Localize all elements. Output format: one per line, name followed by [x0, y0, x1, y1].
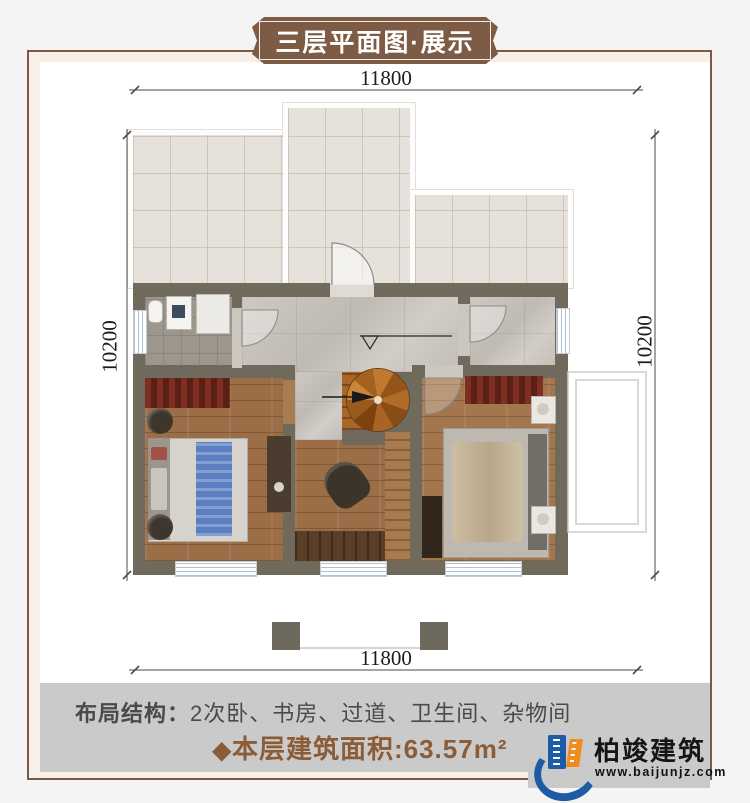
rug — [145, 378, 230, 408]
door-opening-bedroom-right — [425, 365, 463, 378]
logo-building-icon — [548, 735, 566, 769]
nightstand — [531, 506, 556, 534]
dimension-left: 10200 — [98, 302, 123, 392]
column-marker — [272, 622, 300, 650]
side-table — [147, 514, 173, 540]
door-opening-bathroom — [232, 308, 242, 368]
layout-structure-value: 2次卧、书房、过道、卫生间、杂物间 — [190, 701, 571, 726]
title-banner: 三层平面图·展示 — [252, 17, 498, 64]
page-title: 三层平面图·展示 — [252, 17, 498, 64]
window — [556, 308, 570, 354]
window — [133, 310, 147, 354]
desk — [295, 531, 385, 561]
washing-machine — [166, 296, 192, 330]
layout-structure-line: 布局结构：2次卧、书房、过道、卫生间、杂物间 — [75, 696, 571, 728]
floor-area-value: 63.57m² — [404, 734, 508, 764]
company-name: 柏竣建筑 — [594, 731, 706, 768]
pillow — [151, 447, 167, 460]
bookshelf — [385, 432, 410, 561]
room-storage — [470, 297, 555, 372]
wardrobe — [422, 496, 442, 558]
door-opening-terrace — [330, 283, 374, 297]
company-logo: 柏竣建筑 www.baijunjz.com — [532, 729, 710, 791]
dimension-bottom: 11800 — [340, 646, 432, 671]
spiral-staircase-center — [374, 396, 382, 404]
diamond-icon: ◆ — [213, 737, 232, 764]
dimension-right: 10200 — [633, 297, 658, 387]
blanket — [196, 442, 232, 536]
pillow — [151, 468, 167, 510]
company-logo-icon — [534, 731, 592, 787]
side-table — [147, 408, 173, 434]
window — [320, 561, 387, 577]
room-terrace — [288, 108, 410, 285]
blanket — [452, 442, 522, 542]
toilet — [148, 300, 163, 323]
window — [175, 561, 257, 577]
tv-cabinet-detail — [274, 482, 284, 492]
floor-plan-page: 11800 11800 10200 10200 露台 公卫 储藏室 卧室 卧室 … — [0, 0, 750, 803]
dimension-top: 11800 — [340, 66, 432, 91]
door-opening-storage — [458, 304, 470, 356]
door-opening-bedroom-left — [283, 380, 295, 424]
nightstand — [531, 396, 556, 424]
column-marker — [420, 622, 448, 650]
room-terrace — [415, 195, 568, 285]
room-corridor — [295, 372, 342, 440]
window — [445, 561, 522, 577]
layout-structure-label: 布局结构： — [75, 701, 190, 726]
wall-segment — [133, 365, 295, 378]
company-website: www.baijunjz.com — [595, 765, 727, 779]
floor-area-label: 本层建筑面积: — [232, 734, 404, 764]
tv-cabinet — [267, 436, 291, 512]
shower — [196, 294, 230, 334]
room-hallway — [242, 297, 458, 372]
room-terrace — [133, 135, 283, 285]
